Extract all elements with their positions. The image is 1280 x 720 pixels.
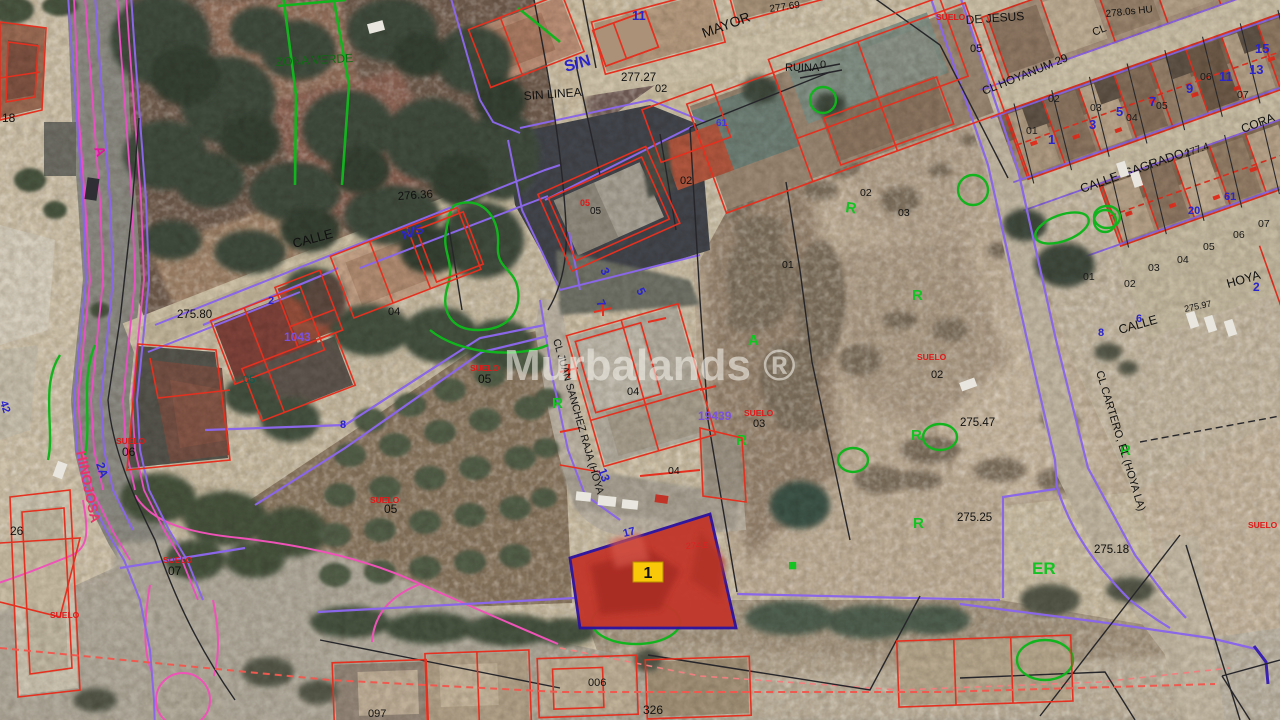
- svg-text:01: 01: [782, 259, 794, 271]
- svg-text:05: 05: [580, 198, 590, 208]
- svg-text:05: 05: [590, 206, 602, 217]
- svg-text:SUELO: SUELO: [50, 610, 80, 620]
- svg-text:7: 7: [1149, 94, 1156, 109]
- svg-text:02: 02: [1048, 93, 1060, 105]
- svg-text:05: 05: [243, 374, 255, 386]
- svg-text:02: 02: [931, 369, 943, 381]
- svg-text:61: 61: [716, 118, 728, 129]
- svg-text:ER: ER: [1032, 559, 1056, 578]
- svg-text:03: 03: [753, 418, 765, 430]
- svg-text:1043: 1043: [284, 330, 311, 344]
- svg-text:R: R: [913, 515, 924, 532]
- svg-text:SUELO: SUELO: [163, 555, 193, 565]
- svg-text:03: 03: [1148, 262, 1160, 274]
- svg-text:02: 02: [860, 187, 872, 199]
- svg-text:04: 04: [1177, 254, 1189, 266]
- svg-text:03: 03: [898, 207, 910, 219]
- svg-text:05: 05: [1203, 241, 1215, 253]
- svg-text:06: 06: [1233, 229, 1245, 241]
- svg-text:13: 13: [1249, 62, 1263, 77]
- svg-text:R: R: [552, 395, 563, 412]
- svg-text:19439: 19439: [698, 409, 732, 423]
- svg-text:20: 20: [1188, 205, 1200, 217]
- svg-text:02: 02: [680, 175, 692, 187]
- svg-text:275.47: 275.47: [960, 417, 995, 429]
- svg-text:05: 05: [478, 372, 492, 386]
- svg-text:326: 326: [643, 703, 663, 717]
- svg-text:SUELO: SUELO: [1248, 520, 1278, 530]
- svg-text:5: 5: [1116, 104, 1123, 119]
- svg-text:275.80: 275.80: [177, 309, 212, 321]
- svg-text:Murbalands ®: Murbalands ®: [504, 341, 796, 390]
- svg-text:1: 1: [644, 565, 653, 582]
- svg-text:SUELO: SUELO: [744, 408, 774, 418]
- svg-text:07: 07: [1237, 89, 1249, 101]
- svg-text:SUELO: SUELO: [370, 495, 400, 505]
- svg-text:03: 03: [1090, 102, 1102, 114]
- svg-text:RUINA: RUINA: [785, 62, 820, 74]
- svg-text:04: 04: [388, 306, 400, 318]
- svg-text:■: ■: [788, 557, 797, 574]
- svg-text:275.25: 275.25: [957, 512, 992, 524]
- svg-text:097: 097: [368, 708, 386, 720]
- svg-text:01: 01: [1026, 125, 1038, 137]
- svg-text:02: 02: [655, 83, 667, 95]
- svg-text:SUELO: SUELO: [116, 436, 146, 446]
- svg-text:9: 9: [1186, 81, 1193, 96]
- svg-text:01: 01: [1083, 271, 1095, 283]
- svg-text:06: 06: [1200, 71, 1212, 83]
- svg-text:SUELO: SUELO: [917, 352, 947, 362]
- svg-text:SUELO: SUELO: [470, 363, 500, 373]
- svg-text:6: 6: [1136, 313, 1142, 325]
- svg-text:8: 8: [1098, 327, 1104, 339]
- svg-text:05: 05: [1156, 100, 1168, 112]
- svg-text:8: 8: [340, 419, 346, 431]
- svg-text:04: 04: [668, 465, 680, 477]
- svg-text:15: 15: [1255, 41, 1269, 56]
- svg-text:02: 02: [1124, 278, 1136, 290]
- svg-text:04: 04: [1126, 112, 1138, 124]
- svg-text:276.36: 276.36: [397, 189, 433, 203]
- svg-text:R: R: [912, 287, 923, 304]
- svg-text:07: 07: [168, 564, 182, 578]
- svg-text:18: 18: [2, 111, 16, 125]
- svg-text:0: 0: [820, 59, 826, 71]
- svg-text:274.9: 274.9: [686, 540, 709, 551]
- svg-text:61: 61: [1224, 191, 1236, 203]
- svg-text:11: 11: [1219, 69, 1233, 84]
- svg-text:1: 1: [1048, 132, 1055, 147]
- svg-text:277.27: 277.27: [621, 72, 656, 84]
- svg-text:2: 2: [1253, 280, 1260, 294]
- svg-text:07: 07: [1258, 218, 1270, 230]
- svg-text:275.18: 275.18: [1094, 544, 1129, 556]
- svg-text:05: 05: [970, 43, 982, 55]
- svg-text:26: 26: [10, 524, 24, 538]
- svg-text:11: 11: [632, 8, 646, 23]
- svg-text:R: R: [911, 427, 922, 444]
- svg-text:SUELO: SUELO: [936, 12, 966, 22]
- svg-text:006: 006: [588, 677, 606, 689]
- svg-text:3: 3: [1089, 117, 1096, 132]
- svg-text:06: 06: [122, 445, 136, 459]
- svg-text:2: 2: [268, 295, 274, 307]
